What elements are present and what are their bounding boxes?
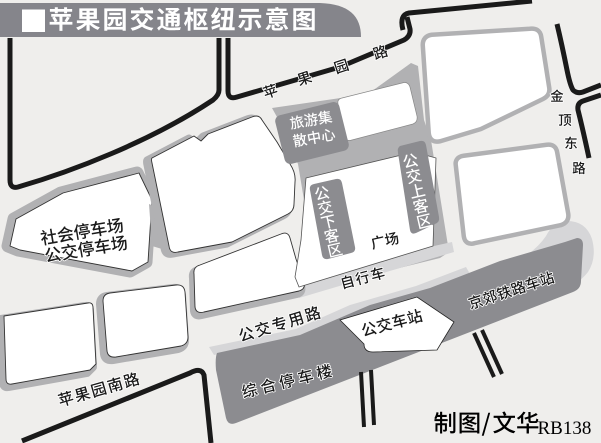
svg-text:RB138: RB138: [538, 418, 592, 439]
